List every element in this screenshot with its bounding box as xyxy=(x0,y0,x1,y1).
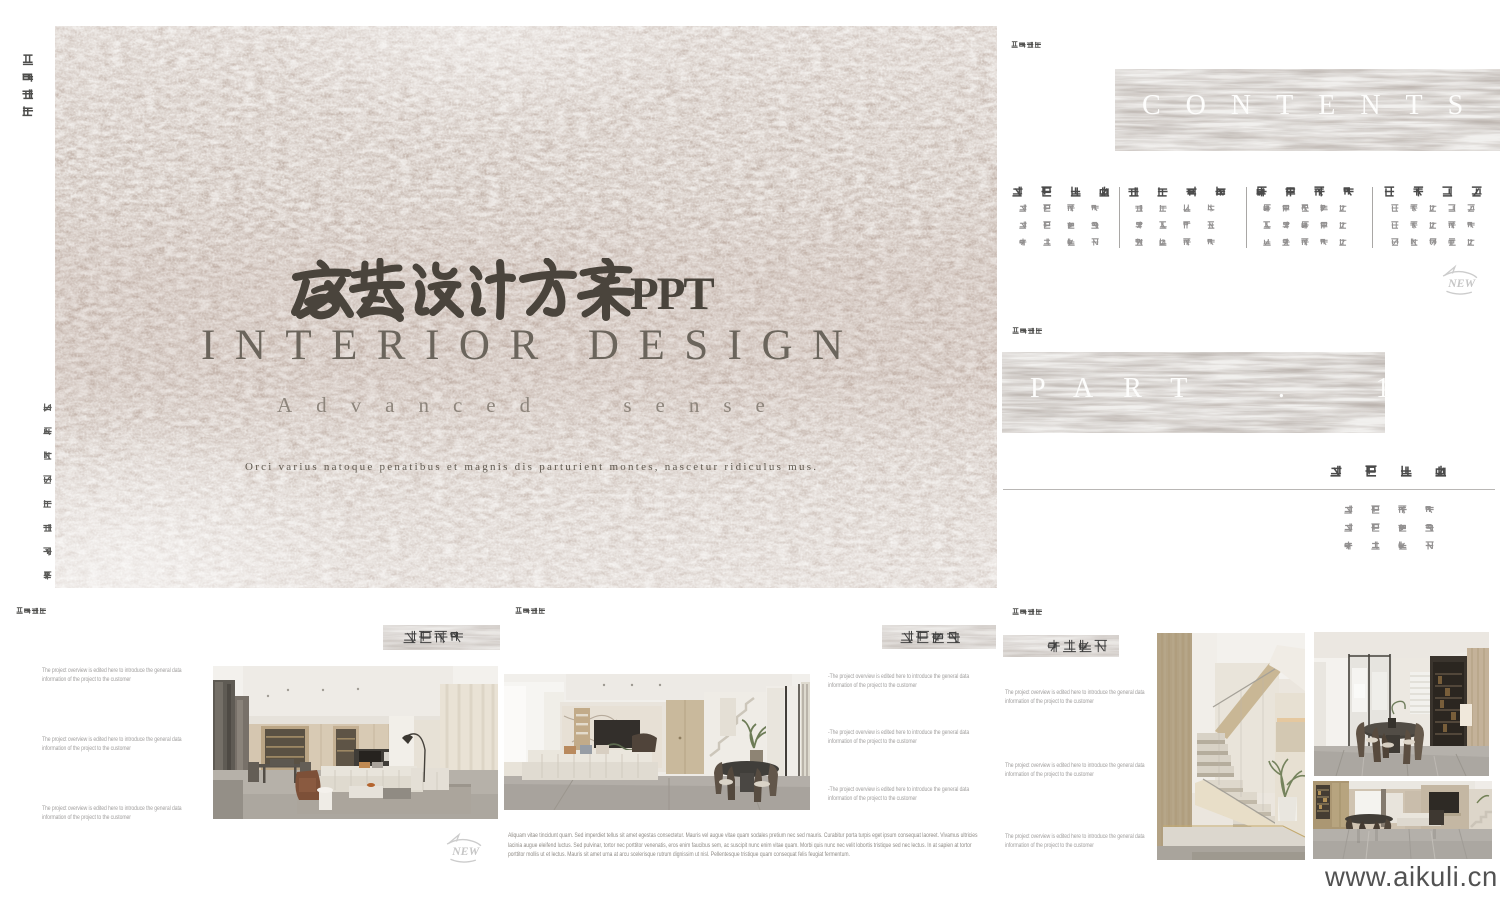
svg-text:NEW: NEW xyxy=(451,844,480,858)
svg-text:NEW: NEW xyxy=(1447,276,1476,290)
svg-text:PPT: PPT xyxy=(630,268,714,320)
